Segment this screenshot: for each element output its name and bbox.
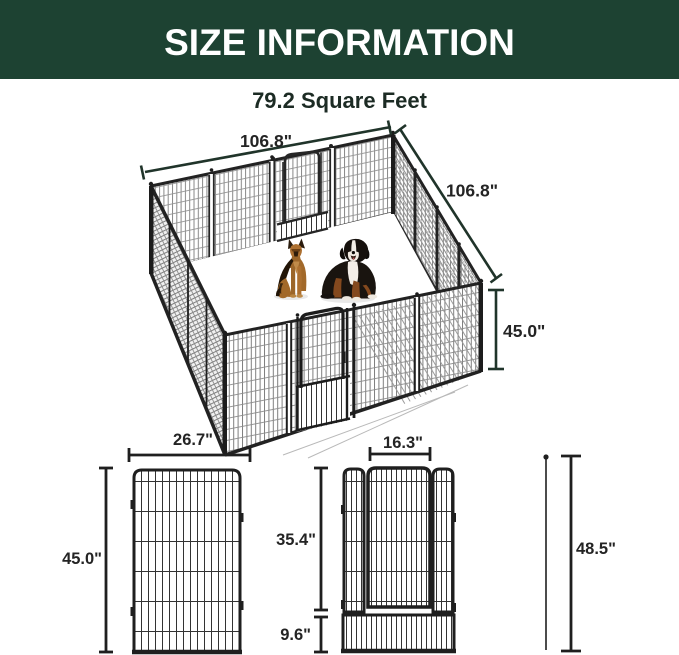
svg-text:16.3": 16.3" — [383, 434, 423, 452]
svg-text:9.6": 9.6" — [280, 626, 311, 644]
svg-text:45.0": 45.0" — [503, 321, 545, 341]
svg-text:35.4": 35.4" — [276, 531, 316, 549]
svg-text:45.0": 45.0" — [62, 550, 102, 568]
svg-text:106.8": 106.8" — [446, 181, 498, 201]
svg-text:48.5": 48.5" — [576, 540, 616, 558]
svg-text:26.7": 26.7" — [173, 431, 213, 449]
svg-text:106.8": 106.8" — [240, 131, 292, 151]
